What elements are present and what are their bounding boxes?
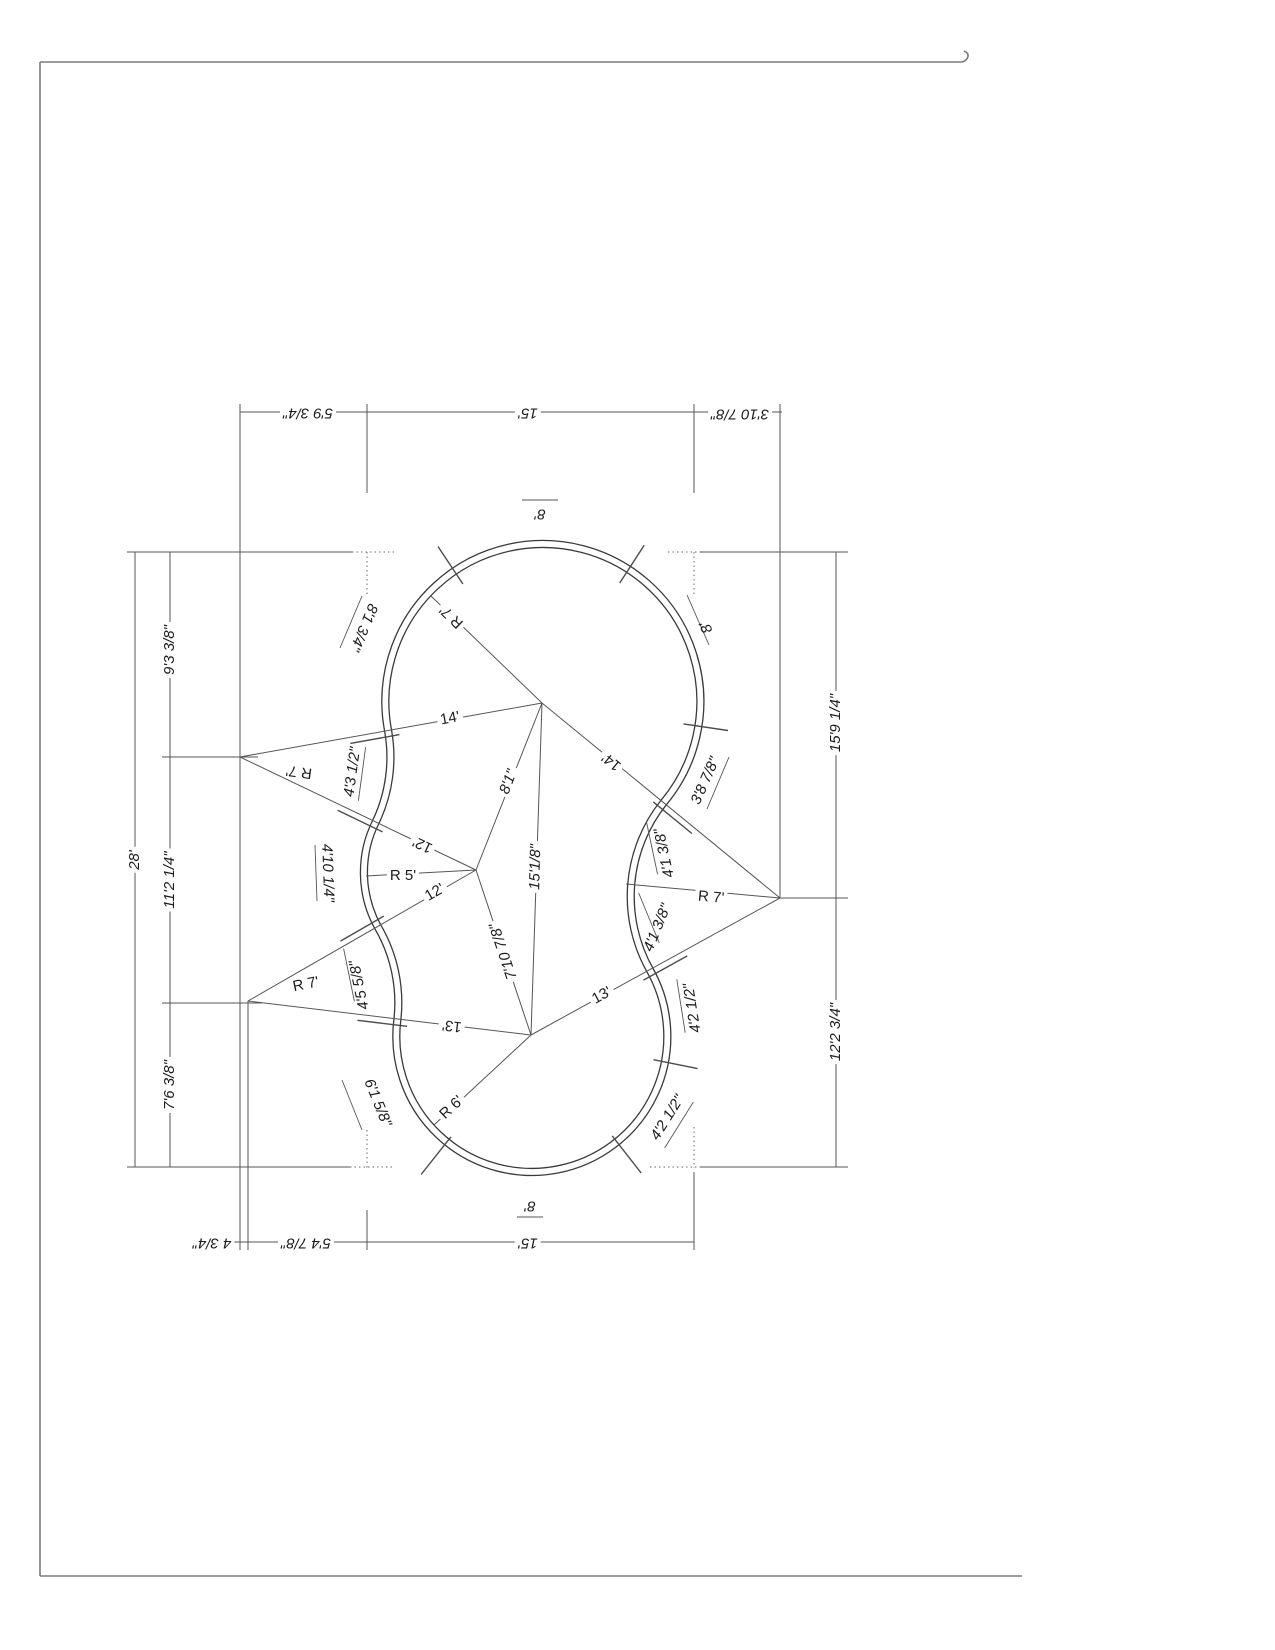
- chord-label-15-1-8: 15'1/8": [527, 841, 545, 893]
- arc-label-top: 8': [534, 505, 545, 522]
- dim-label-right-1: 15'9 1/4": [828, 691, 845, 755]
- arc-label-bottom: 8': [524, 1197, 535, 1214]
- dim-label-top-3: 3'10 7/8": [708, 405, 772, 422]
- radius-label-waist: R 5': [387, 868, 419, 885]
- pool-measurement-drawing: 5'9 3/4" 15' 3'10 7/8" 28' 9'3 3/8" 11'2…: [0, 0, 1275, 1650]
- dim-label-top-1: 5'9 3/4": [280, 404, 336, 421]
- dim-label-left-2: 11'2 1/4": [162, 848, 179, 911]
- page-border: [40, 51, 1022, 1576]
- radius-label-left-upper: R 7': [285, 761, 313, 781]
- chord-label-13-left: 13': [438, 1015, 465, 1034]
- dim-label-left-3: 7'6 3/8": [162, 1057, 179, 1113]
- dim-label-left-total: 28': [127, 847, 144, 873]
- dim-label-bottom-1: 4 3/4": [190, 1234, 235, 1251]
- dimension-lines: [127, 404, 848, 1250]
- arc-label-waist: 4'10 1/4": [318, 844, 337, 903]
- dim-label-right-2: 12'2 3/4": [828, 1000, 845, 1064]
- drawing-linework: [0, 0, 1275, 1650]
- dim-label-top-2: 15': [515, 404, 541, 421]
- dim-label-left-1: 9'3 3/8": [162, 622, 179, 678]
- corner-dotted-marks: [350, 552, 700, 1168]
- radius-label-right: R 7': [694, 888, 728, 907]
- dim-label-bottom-3: 15': [515, 1234, 541, 1251]
- dim-label-bottom-2: 5'4 7/8": [278, 1234, 334, 1251]
